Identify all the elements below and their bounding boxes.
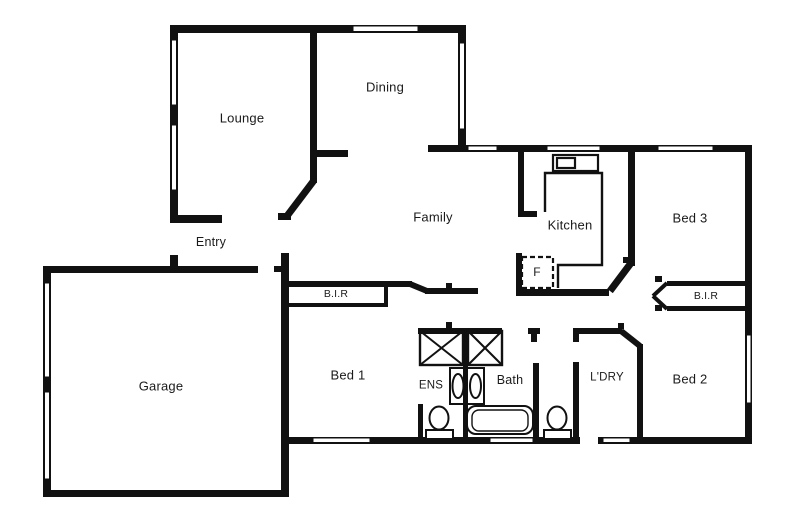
room-label-family: Family bbox=[413, 211, 452, 224]
toilet-ens-icon bbox=[426, 407, 453, 440]
shower-bath-icon bbox=[468, 331, 502, 365]
cooktop-sink-icon bbox=[553, 155, 598, 171]
garage-door-1 bbox=[45, 283, 50, 377]
room-label-ens: ENS bbox=[419, 380, 443, 392]
bathtub-icon bbox=[467, 406, 533, 434]
room-label-bath: Bath bbox=[497, 374, 524, 387]
room-label-lounge: Lounge bbox=[220, 112, 265, 125]
floor-plan: Lounge Dining Family Kitchen Entry B.I.R… bbox=[0, 0, 790, 527]
garage-door-2 bbox=[45, 392, 50, 479]
room-label-kitchen: Kitchen bbox=[548, 219, 593, 232]
room-label-bir-bed1: B.I.R bbox=[324, 289, 348, 300]
room-label-entry: Entry bbox=[196, 236, 226, 249]
room-label-bed1: Bed 1 bbox=[331, 369, 366, 382]
room-label-dining: Dining bbox=[366, 81, 404, 94]
room-label-garage: Garage bbox=[139, 380, 184, 393]
vanity-bath-icon bbox=[467, 368, 484, 404]
room-label-fridge: F bbox=[533, 266, 541, 278]
room-label-bed3: Bed 3 bbox=[673, 212, 708, 225]
shower-ens-icon bbox=[420, 331, 463, 365]
room-label-bed2: Bed 2 bbox=[673, 373, 708, 386]
room-label-bir-bed2: B.I.R bbox=[694, 291, 718, 302]
exterior-walls bbox=[43, 25, 752, 497]
toilet-wc-icon bbox=[544, 407, 571, 440]
room-label-ldry: L'DRY bbox=[590, 372, 624, 384]
